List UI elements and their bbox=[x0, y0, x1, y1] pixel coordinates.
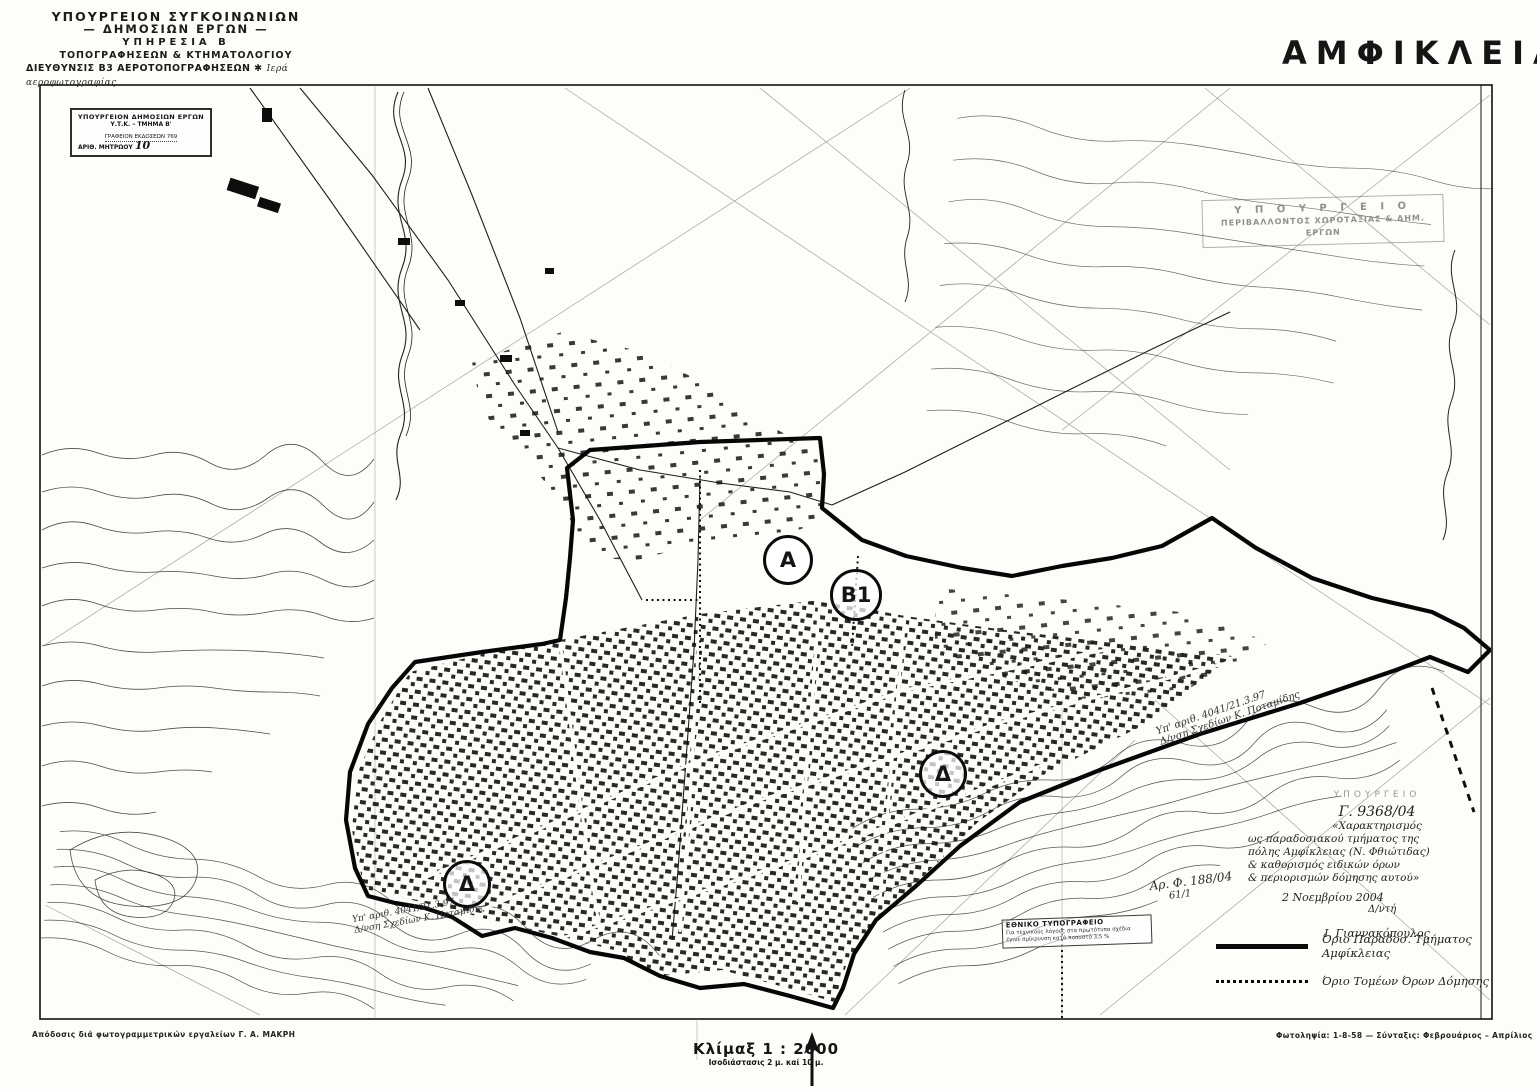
legend-solid-line-swatch bbox=[1216, 944, 1308, 949]
zone-marker-b1: Β1 bbox=[830, 569, 882, 621]
credit-photography: Φωτοληψία: 1-8-58 — Σύνταξις: Φεβρουάριο… bbox=[1276, 1031, 1533, 1040]
approval-date: 2 Νοεμβρίου 2004 bbox=[1248, 891, 1506, 904]
scale-label: Κλίμαξ 1 : 2000 bbox=[686, 1040, 846, 1058]
zone-marker-d-east: Δ bbox=[919, 750, 967, 798]
legend-item-label: Όριο Παραδοσ. Τμήματος Αμφίκλειας bbox=[1322, 932, 1516, 960]
registry-stamp-line: Υ.Τ.Κ. – ΤΜΗΜΑ Β' bbox=[74, 121, 208, 129]
header-line: ΔΙΕΥΘΥΝΣΙΣ Β3 ΑΕΡΟΤΟΠΟΓΡΑΦΗΣΕΩΝ ✱ Ιερά α… bbox=[26, 62, 326, 90]
sheet-title: ΑΜΦΙΚΛΕΙΑ bbox=[1282, 34, 1508, 72]
header-line: ΥΠΗΡΕΣΙΑ Β bbox=[26, 36, 326, 49]
registry-number-label: ΑΡΙΘ. ΜΗΤΡΩΟΥ bbox=[78, 144, 133, 151]
legend-item-label: Όριο Τομέων Όρων Δόμησης bbox=[1322, 974, 1489, 988]
header-line: ΤΟΠΟΓΡΑΦΗΣΕΩΝ & ΚΤΗΜΑΤΟΛΟΓΙΟΥ bbox=[26, 49, 326, 62]
map-sheet: ΥΠΟΥΡΓΕΙΟΝ ΣΥΓΚΟΙΝΩΝΙΩΝ — ΔΗΜΟΣΙΩΝ ΕΡΓΩΝ… bbox=[0, 0, 1537, 1089]
contour-interval-label: Ισοδιάστασις 2 μ. καί 10 μ. bbox=[686, 1058, 846, 1067]
approval-protocol-number: Γ. 9368/04 bbox=[1248, 804, 1506, 820]
registry-stamp: ΥΠΟΥΡΓΕΙΟΝ ΔΗΜΟΣΙΩΝ ΕΡΓΩΝ Υ.Τ.Κ. – ΤΜΗΜΑ… bbox=[70, 108, 212, 157]
contour-lines-northeast bbox=[926, 112, 1515, 479]
approval-text-line: «Χαρακτηρισμός bbox=[1248, 820, 1506, 833]
ministry-approval-stamp: Υ Π Ο Υ Ρ Γ Ε Ι Ο ΠΕΡΙΒΑΛΛΟΝΤΟΣ ΧΩΡΟΤΑΞΙ… bbox=[1201, 194, 1444, 248]
approval-text-line: & περιορισμών δόμησης αυτού» bbox=[1248, 872, 1506, 885]
approval-role: Δ/ντή bbox=[1248, 904, 1506, 915]
map-scale: Κλίμαξ 1 : 2000 Ισοδιάστασις 2 μ. καί 10… bbox=[686, 1040, 846, 1067]
approval-text-line: & καθορισμός ειδικών όρων bbox=[1248, 859, 1506, 872]
approval-text-line: πόλης Αμφίκλειας (Ν. Φθιώτιδας) bbox=[1248, 846, 1506, 859]
stamp-line: ΠΕΡΙΒΑΛΛΟΝΤΟΣ ΧΩΡΟΤΑΞΙΑΣ & ΔΗΜ. ΕΡΓΩΝ bbox=[1207, 212, 1440, 242]
registry-stamp-line: ΥΠΟΥΡΓΕΙΟΝ ΔΗΜΟΣΙΩΝ ΕΡΓΩΝ bbox=[74, 113, 208, 121]
national-printing-office-stamp: ΕΘΝΙΚΟ ΤΥΠΟΓΡΑΦΕΙΟ Για τεχνικούς λόγους … bbox=[1002, 914, 1153, 948]
contour-lines-west bbox=[42, 444, 374, 917]
header-line-text: ΔΙΕΥΘΥΝΣΙΣ Β3 ΑΕΡΟΤΟΠΟΓΡΑΦΗΣΕΩΝ ✱ bbox=[26, 63, 263, 74]
approval-note: ΥΠΟΥΡΓΕΙΟ Γ. 9368/04 «Χαρακτηρισμός ως π… bbox=[1248, 790, 1506, 940]
credit-restitution: Απόδοσις διά φωτογραμμετρικών εργαλείων … bbox=[32, 1030, 295, 1039]
legend-item: Όριο Τομέων Όρων Δόμησης bbox=[1216, 974, 1516, 988]
legend: Όριο Παραδοσ. Τμήματος Αμφίκλειας Όριο Τ… bbox=[1216, 932, 1516, 1002]
registry-number-value: 10 bbox=[135, 139, 150, 152]
header-line: — ΔΗΜΟΣΙΩΝ ΕΡΓΩΝ — bbox=[26, 23, 326, 36]
zone-marker-a: Α bbox=[763, 535, 813, 585]
ministry-header: ΥΠΟΥΡΓΕΙΟΝ ΣΥΓΚΟΙΝΩΝΙΩΝ — ΔΗΜΟΣΙΩΝ ΕΡΓΩΝ… bbox=[26, 10, 326, 90]
approval-text-line: ως παραδοσιακού τμήματος της bbox=[1248, 833, 1506, 846]
approval-faint-stamp: ΥΠΟΥΡΓΕΙΟ bbox=[1248, 790, 1506, 800]
legend-item: Όριο Παραδοσ. Τμήματος Αμφίκλειας bbox=[1216, 932, 1516, 960]
registry-stamp-line: ΑΡΙΘ. ΜΗΤΡΩΟΥ 10 bbox=[74, 142, 208, 152]
legend-dotted-line-swatch bbox=[1216, 980, 1308, 983]
